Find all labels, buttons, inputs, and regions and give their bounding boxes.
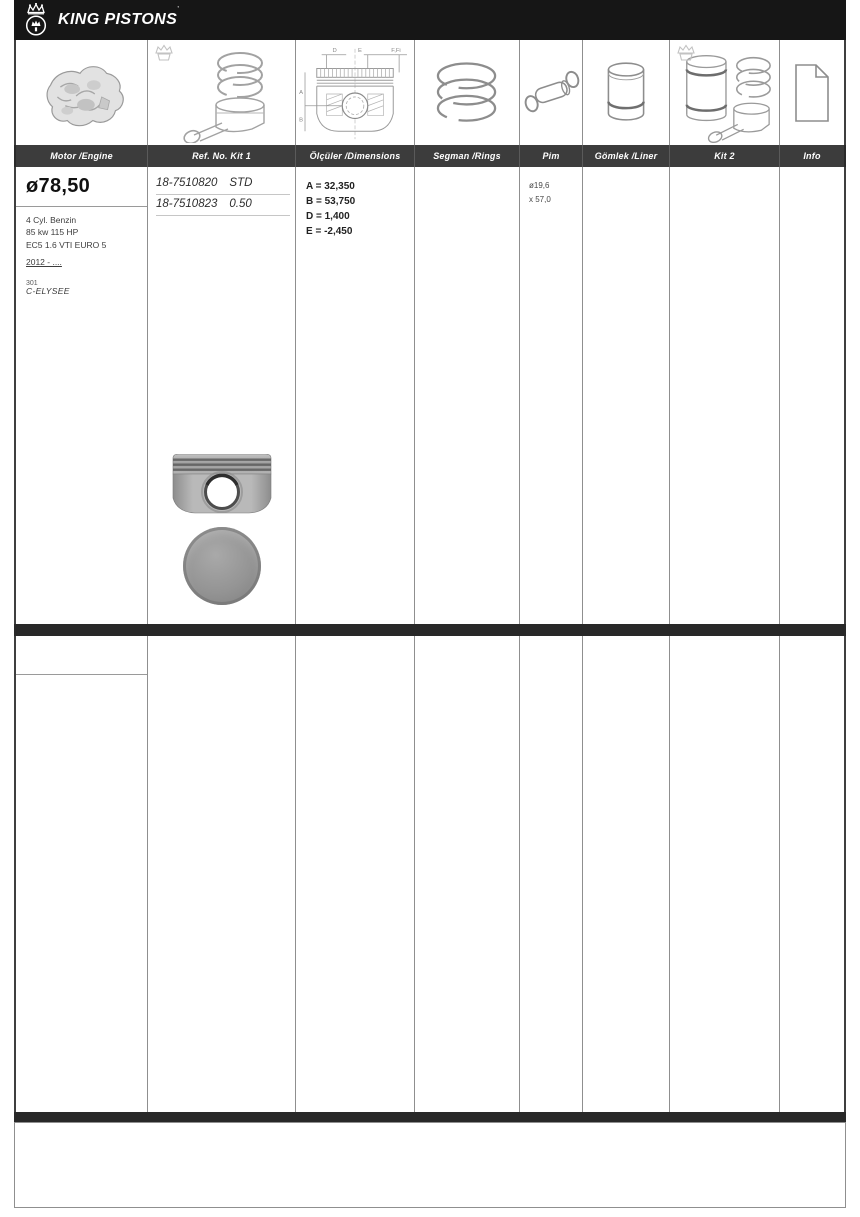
icon-cell-liner (583, 40, 670, 145)
pin-icon (521, 48, 582, 138)
motor-engine-cell-empty (14, 636, 148, 1112)
column-header-rings: Segman /Rings (415, 145, 520, 167)
dimension-line: B = 53,750 (306, 194, 414, 209)
pin-length: x 57,0 (529, 193, 582, 207)
engine-spec-line: 4 Cyl. Benzin (26, 214, 139, 226)
icon-cell-pin (520, 40, 583, 145)
ref-number-line: 18-75108230.50 (156, 195, 290, 216)
pin-diameter: ø19,6 (529, 179, 582, 193)
info-cell-empty (780, 636, 846, 1112)
column-header-row: Motor /Engine Ref. No. Kit 1 Ölçüler /Di… (14, 145, 846, 167)
ref-number: 18-7510823 (156, 198, 217, 210)
pin-cell-empty (520, 636, 583, 1112)
engine-spec-line: 85 kw 115 HP (26, 226, 139, 238)
icon-row: D E F,Fi (14, 40, 846, 145)
engine-spec-line: EC5 1.6 VTI EURO 5 (26, 239, 139, 251)
engine-specs: 4 Cyl. Benzin 85 kw 115 HP EC5 1.6 VTI E… (26, 214, 139, 251)
empty-table-row (14, 636, 846, 1112)
brand-name: KING PISTONS’ (58, 11, 179, 29)
info-cell (780, 167, 846, 624)
dimension-line: E = -2,450 (306, 224, 414, 239)
ref-number: 18-7510820 (156, 177, 217, 189)
year-range: 2012 - .... (26, 257, 62, 267)
kit2-cell-empty (670, 636, 780, 1112)
diagram-label-e: E (357, 47, 361, 53)
brand-name-text: KING PISTONS (58, 11, 177, 28)
column-header-ref-kit1: Ref. No. Kit 1 (148, 145, 296, 167)
mini-crown-icon (675, 44, 697, 64)
bore-diameter: ø78,50 (26, 175, 139, 198)
dimension-line: D = 1,400 (306, 209, 414, 224)
icon-cell-info (780, 40, 846, 145)
diagram-label-a: A (299, 89, 303, 95)
column-header-kit2: Kit 2 (670, 145, 780, 167)
liner-cell-empty (583, 636, 670, 1112)
kit2-cell (670, 167, 780, 624)
icon-cell-dimensions: D E F,Fi (296, 40, 415, 145)
column-header-liner: Gömlek /Liner (583, 145, 670, 167)
piston-top-photo (183, 527, 261, 605)
info-sheet-icon (788, 61, 836, 125)
liner-cell (583, 167, 670, 624)
brand-logo: KING PISTONS’ (21, 3, 179, 37)
pin-cell: ø19,6 x 57,0 (520, 167, 583, 624)
brand-header: KING PISTONS’ (14, 0, 846, 40)
rings-cell (415, 167, 520, 624)
crown-emblem-icon (21, 3, 51, 37)
piston-side-photo (169, 454, 275, 517)
footer-notes-box (14, 1122, 846, 1208)
icon-cell-motor (14, 40, 148, 145)
diagram-label-d: D (332, 47, 336, 53)
piston-dimensions-diagram-icon: D E F,Fi (297, 43, 414, 143)
ref-size: 0.50 (229, 198, 251, 210)
ref-kit1-cell-empty (148, 636, 296, 1112)
mini-crown-icon (153, 44, 175, 64)
icon-cell-kit2 (670, 40, 780, 145)
icon-cell-rings (415, 40, 520, 145)
vehicle-model: C-ELYSEE (26, 287, 139, 296)
vehicle-models: 301 C-ELYSEE (26, 280, 139, 296)
diagram-label-f: F,Fi (391, 47, 400, 53)
rings-icon (417, 48, 517, 138)
trademark-mark: ’ (177, 5, 179, 14)
dimensions-cell-empty (296, 636, 415, 1112)
engine-icon (23, 47, 141, 139)
table-row: ø78,50 4 Cyl. Benzin 85 kw 115 HP EC5 1.… (14, 167, 846, 624)
ref-size: STD (229, 177, 252, 189)
icon-cell-kit1 (148, 40, 296, 145)
dimensions-cell: A = 32,350 B = 53,750 D = 1,400 E = -2,4… (296, 167, 415, 624)
section-separator-bar (14, 624, 846, 636)
column-header-pin: Pim (520, 145, 583, 167)
column-header-motor: Motor /Engine (14, 145, 148, 167)
cell-divider (16, 674, 147, 675)
dimension-line: A = 32,350 (306, 179, 414, 194)
ref-kit1-cell: 18-7510820STD 18-75108230.50 (148, 167, 296, 624)
liner-icon (584, 48, 669, 138)
catalog-page: KING PISTONS’ (14, 0, 846, 1208)
cell-divider (16, 206, 147, 207)
column-header-dimensions: Ölçüler /Dimensions (296, 145, 415, 167)
diagram-label-b: B (299, 117, 303, 123)
rings-cell-empty (415, 636, 520, 1112)
motor-engine-cell: ø78,50 4 Cyl. Benzin 85 kw 115 HP EC5 1.… (14, 167, 148, 624)
section-separator-bar (14, 1112, 846, 1122)
column-header-info: Info (780, 145, 846, 167)
ref-number-line: 18-7510820STD (156, 174, 290, 195)
